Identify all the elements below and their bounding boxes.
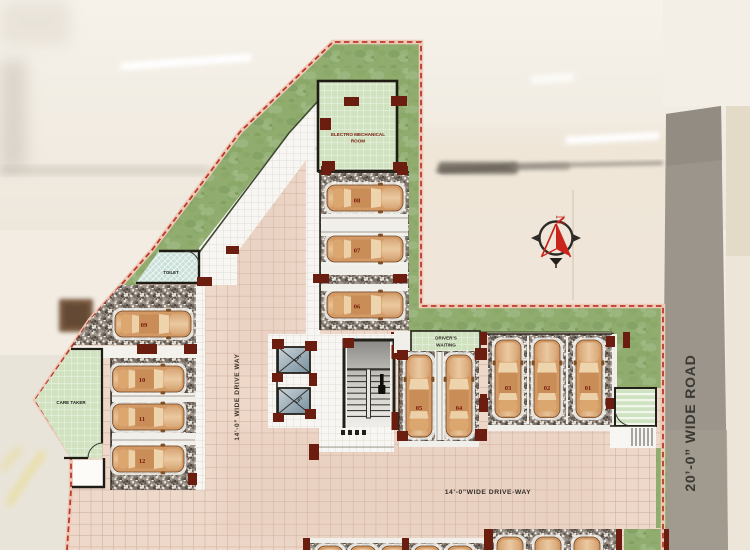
svg-text:DRIVER’S: DRIVER’S <box>435 336 457 341</box>
svg-text:06: 06 <box>354 304 361 311</box>
svg-text:11: 11 <box>139 416 145 423</box>
svg-text:ROOM: ROOM <box>351 139 365 144</box>
svg-text:05: 05 <box>416 405 423 412</box>
svg-text:CARE TAKER: CARE TAKER <box>56 400 86 405</box>
svg-text:N: N <box>553 215 568 225</box>
svg-text:08: 08 <box>354 198 361 205</box>
svg-text:10: 10 <box>139 377 146 384</box>
svg-text:TOILET: TOILET <box>163 270 179 275</box>
svg-text:12: 12 <box>139 458 146 465</box>
svg-text:07: 07 <box>354 248 361 255</box>
svg-text:01: 01 <box>585 385 592 392</box>
svg-text:03: 03 <box>505 385 512 392</box>
svg-text:14’-0” WIDE DRIVE WAY: 14’-0” WIDE DRIVE WAY <box>234 353 241 440</box>
svg-text:04: 04 <box>456 405 463 412</box>
svg-text:14’-0”WIDE DRIVE-WAY: 14’-0”WIDE DRIVE-WAY <box>445 489 531 496</box>
svg-text:WAITING: WAITING <box>436 343 456 348</box>
svg-text:09: 09 <box>141 322 148 329</box>
svg-text:02: 02 <box>544 385 551 392</box>
svg-text:ELECTRO MECHANICAL: ELECTRO MECHANICAL <box>331 132 385 137</box>
svg-text:20’-0” WIDE ROAD: 20’-0” WIDE ROAD <box>682 354 698 491</box>
